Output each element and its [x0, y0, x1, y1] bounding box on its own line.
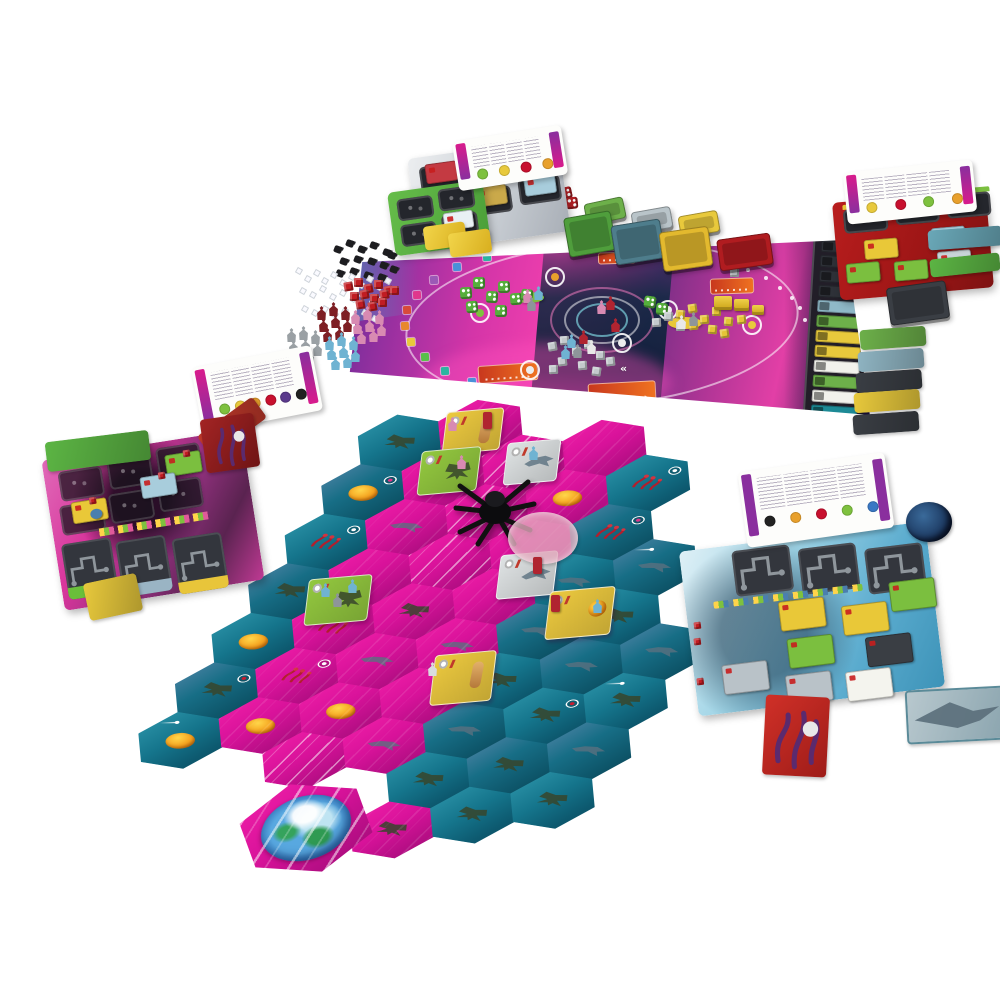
ref-rule-icon [542, 157, 555, 170]
red-art-card [762, 694, 830, 777]
ref-rule-icon [764, 515, 776, 527]
fish-creature-icon [385, 517, 429, 535]
track-space-chip [412, 290, 421, 299]
mini-tile [863, 237, 899, 260]
green-die [498, 281, 510, 293]
moth-creature-icon [268, 581, 311, 601]
exploration-card [544, 586, 616, 640]
ref-rule-icon [923, 196, 935, 208]
card-stack [658, 226, 713, 273]
yellow-cube [719, 328, 729, 338]
green-die [643, 295, 657, 309]
moth-creature-icon [392, 601, 435, 621]
planet-disc [161, 731, 199, 751]
moth-creature-icon [370, 819, 413, 839]
yellow-cube [737, 315, 747, 325]
white-resource-bit [329, 293, 337, 301]
printed-icon-badge [545, 267, 565, 287]
comet-icon [634, 549, 652, 551]
track-space-chip [482, 253, 491, 262]
black-resource-bit [353, 255, 363, 264]
coral-creature-icon [589, 519, 633, 542]
exploration-card [429, 650, 497, 706]
moth-creature-icon [604, 690, 647, 710]
card-stack [886, 280, 951, 326]
circuit-card [171, 532, 229, 595]
red-marker [694, 638, 702, 646]
small-tile [853, 389, 920, 414]
board-slot [57, 465, 105, 502]
green-die [473, 277, 485, 289]
ref-text-lines [861, 177, 884, 201]
ref-text-lines [929, 170, 952, 194]
mini-tile [786, 634, 835, 669]
red-cube [390, 286, 399, 295]
ref-rule-icon [894, 199, 906, 211]
track-space-chip [429, 276, 438, 285]
coral-creature-icon [275, 663, 319, 686]
track-space-chip [403, 306, 412, 315]
hex-badge-icon [381, 475, 399, 485]
card-cost-icon [504, 559, 514, 569]
mini-tile [845, 261, 881, 284]
main-game-board: »« [332, 228, 872, 428]
ref-text-lines [471, 145, 490, 168]
ref-edge-bar [455, 143, 471, 180]
card-stack [563, 210, 617, 258]
white-resource-bit [304, 275, 312, 283]
card-energy-mark [564, 596, 571, 605]
moth-creature-icon [195, 680, 238, 700]
hex-badge-icon [315, 659, 333, 669]
black-resource-bit [357, 245, 367, 254]
gray-cube [652, 318, 661, 327]
gray-cube [606, 357, 616, 367]
card-energy-mark [436, 456, 443, 465]
player-board-blue [679, 522, 945, 717]
white-resource-bit [299, 287, 307, 295]
score-strip-chip [813, 360, 860, 375]
gray-meeple [310, 330, 321, 344]
fish-creature-icon [560, 656, 604, 674]
card-cost-icon [425, 455, 435, 465]
ref-text-lines [210, 369, 233, 400]
printed-action-panel [588, 380, 657, 404]
hex-badge-icon [563, 699, 581, 709]
printed-arrow-glyph: « [620, 362, 627, 375]
moth-creature-icon [531, 789, 574, 809]
red-marker [696, 678, 704, 686]
hex-badge-icon [345, 525, 363, 535]
red-cube [367, 301, 377, 311]
ref-rule-icon [476, 168, 489, 181]
gray-cube [664, 312, 673, 321]
gray-cube [591, 366, 601, 376]
gray-cube [547, 341, 557, 351]
ref-rule-icon [264, 394, 277, 407]
planet-disc [234, 632, 272, 652]
small-tile [859, 326, 926, 351]
white-resource-bit [301, 305, 309, 313]
score-strip-chip [811, 405, 858, 420]
red-cube [158, 472, 166, 480]
track-space-chip [516, 245, 525, 254]
gray-cube [596, 351, 605, 360]
black-resource-bit [345, 239, 355, 248]
darkred-meeple [328, 302, 339, 316]
score-strip-chip [814, 345, 861, 360]
white-resource-bit [319, 285, 327, 293]
ref-text-lines [884, 175, 907, 199]
track-dot [764, 276, 768, 280]
ref-text-lines [230, 365, 253, 396]
planet-disc [322, 701, 360, 721]
circuit-tile [731, 544, 794, 597]
ref-text-lines [810, 467, 839, 502]
fish-creature-icon [633, 557, 677, 575]
track-space-chip [401, 322, 410, 331]
ref-rule-icon [790, 511, 802, 523]
white-resource-bit [295, 267, 303, 275]
gray-cube [578, 361, 588, 371]
ref-text-lines [837, 463, 866, 498]
track-space-chip [500, 387, 509, 396]
ref-rule-icon [867, 501, 879, 513]
track-space-chip [468, 378, 477, 387]
score-strip-chip [812, 390, 859, 405]
green-die [460, 287, 473, 300]
yellow-card [448, 228, 493, 258]
yellow-cube [724, 317, 734, 327]
white-resource-bit [321, 277, 329, 285]
gray-cube [549, 365, 558, 374]
red-cube [343, 281, 353, 291]
gray-ship-strip [905, 685, 1000, 744]
ref-rule-icon [866, 202, 878, 214]
ref-rule-icon [280, 391, 293, 404]
yellow-cube [708, 325, 718, 335]
score-strip-chip [815, 330, 862, 345]
comet-icon [605, 683, 623, 685]
small-tile [852, 411, 919, 436]
translucent-disc-token [508, 512, 578, 564]
card-cost-icon [511, 447, 521, 457]
mini-tile [888, 577, 937, 612]
coral-creature-icon [626, 470, 670, 493]
white-resource-bit [309, 291, 317, 299]
track-space-chip [441, 366, 450, 375]
black-resource-bit [333, 245, 343, 254]
printed-action-panel [710, 277, 755, 295]
red-cube [359, 289, 369, 299]
fish-creature-icon [640, 641, 684, 659]
red-cube [374, 280, 383, 289]
card-cost-icon [312, 583, 322, 593]
yellow-structure-token [714, 296, 732, 310]
yellow-cube [700, 315, 710, 325]
card-energy-mark [449, 660, 456, 669]
ref-rule-icon [815, 508, 827, 520]
ref-text-lines [270, 357, 293, 388]
planet-disc [242, 716, 280, 736]
tall-piece [483, 412, 492, 429]
ref-text-lines [906, 172, 929, 196]
gray-meeple [286, 328, 297, 342]
yellow-structure-token [752, 305, 764, 315]
red-art-card [200, 413, 261, 474]
track-space-chip [420, 353, 429, 362]
fish-creature-icon [443, 721, 487, 739]
hex-badge-icon [235, 674, 253, 684]
mini-tile [845, 667, 894, 702]
red-cube [354, 278, 363, 287]
red-marker [694, 622, 702, 630]
green-die [465, 300, 478, 313]
mini-tile [841, 601, 890, 636]
white-resource-bit [313, 269, 321, 277]
mini-tile [893, 259, 929, 282]
printed-icon-badge [612, 333, 632, 353]
earth-hex-tile [222, 781, 391, 876]
tabletop-scene: »« [0, 0, 1000, 1000]
board-slot [396, 195, 435, 222]
moth-creature-icon [450, 804, 493, 824]
printed-icon-badge [520, 360, 540, 380]
ref-text-lines [250, 361, 273, 392]
ref-rule-icon [951, 193, 963, 205]
planet-disc [548, 488, 586, 508]
card-figure-art [469, 661, 485, 688]
track-space-chip [453, 263, 462, 272]
fish-creature-icon [355, 651, 399, 669]
score-strip-chip [813, 375, 860, 390]
track-dot [746, 268, 750, 272]
hex-badge-icon [629, 515, 647, 525]
coral-creature-icon [305, 529, 349, 552]
black-resource-bit [369, 241, 379, 250]
score-strip-chip [817, 300, 864, 315]
gray-meeple [298, 326, 309, 340]
planet-disc-token [906, 502, 952, 542]
ref-rule-icon [520, 161, 533, 174]
track-space-chip [554, 240, 563, 249]
planet-disc [344, 483, 382, 503]
ref-edge-bar [846, 175, 860, 214]
ref-rule-icon [841, 504, 853, 516]
green-die [495, 305, 507, 317]
earth-planet-art [250, 792, 362, 863]
black-resource-bit [339, 257, 349, 266]
comet-icon [159, 722, 177, 724]
card-cost-icon [438, 659, 448, 669]
yellow-cube [687, 303, 697, 313]
tall-piece [551, 595, 560, 612]
red-cube [355, 299, 365, 309]
tall-piece [533, 557, 542, 574]
ref-text-lines [756, 475, 785, 510]
mini-tile [865, 632, 914, 667]
score-strip-chip [816, 315, 863, 330]
card-stack [610, 218, 666, 265]
yellow-structure-token [734, 299, 749, 311]
ref-text-lines [523, 136, 542, 159]
ref-rule-icon [498, 164, 511, 177]
moth-creature-icon [487, 755, 530, 775]
track-space-chip [407, 338, 416, 347]
moth-creature-icon [378, 432, 421, 452]
mini-tile [721, 660, 770, 695]
green-die [486, 291, 499, 304]
fish-creature-icon [362, 735, 406, 753]
moth-creature-icon [524, 705, 567, 725]
red-cube [378, 298, 387, 307]
moth-creature-icon [407, 769, 450, 789]
track-space-chip [535, 394, 544, 403]
mini-tile [778, 596, 827, 631]
red-cube [89, 497, 97, 505]
card-energy-mark [461, 416, 468, 425]
ref-text-lines [783, 471, 812, 506]
gray-meeple [312, 342, 323, 356]
fish-creature-icon [567, 741, 611, 759]
ref-text-lines [488, 142, 507, 165]
ref-text-lines [505, 139, 524, 162]
red-cube [182, 449, 190, 457]
hex-badge-icon [666, 466, 684, 476]
track-dot [790, 296, 794, 300]
